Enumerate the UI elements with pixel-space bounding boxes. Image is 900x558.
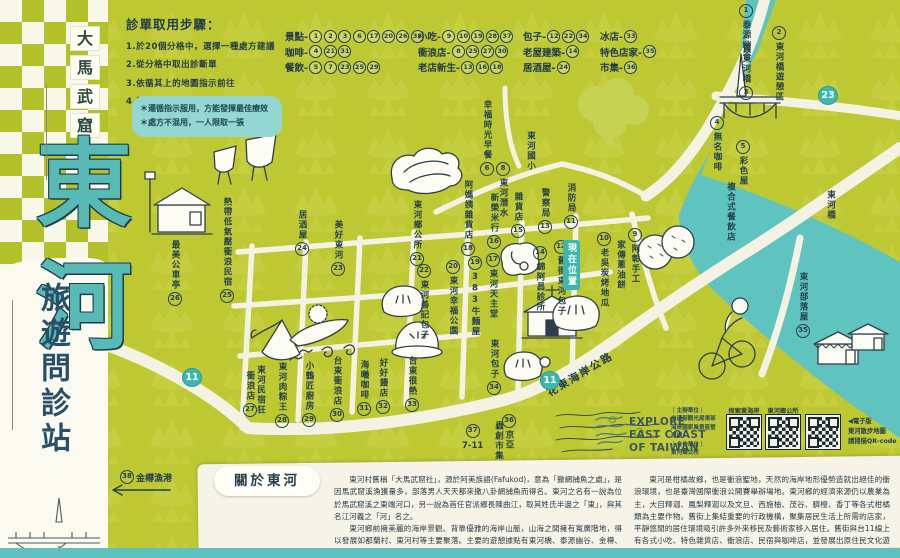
map-label-text: 京亞: [504, 430, 514, 450]
map-label: 東河民宿狂: [256, 365, 265, 415]
jinzun-arrow-icon: [113, 485, 170, 495]
legend-row: 老屋建築-14: [523, 46, 589, 58]
qr-code: 東河鄉公所: [766, 406, 800, 449]
scallion-pancake-illustration: [638, 226, 694, 269]
map-label-11: 消防局11: [564, 183, 578, 231]
map-label-text: 金樽漁港: [136, 471, 172, 484]
legend-row: 景點-123617202638: [285, 30, 424, 42]
legend-category-label: 餐飲-: [285, 60, 308, 74]
map-label-9: 9阿彰手工: [628, 226, 642, 284]
location-number-circle: 6: [480, 162, 494, 176]
map-label-text: 東河幸福公園: [448, 276, 458, 336]
map-label: 東河國小: [526, 131, 535, 171]
location-number-circle: 11: [564, 215, 578, 229]
map-label-31: 海曦咖啡31: [357, 360, 371, 418]
map-label-27: 衝浪店27: [243, 371, 257, 419]
sidebar-title-panel: 大馬武窟 東河 旅遊問診站: [0, 0, 108, 558]
location-number-circle: 1: [739, 4, 753, 18]
map-label-text: 東河橋: [826, 190, 836, 220]
legend-number-circle: 29: [367, 61, 380, 74]
location-number-circle: 35: [796, 324, 810, 338]
legend-row: 居酒屋-24: [523, 61, 589, 73]
qr-code-label: 東河鄉公所: [768, 406, 799, 414]
map-label-24: 居酒屋24: [295, 210, 309, 258]
legend-number-circle: 10: [457, 30, 470, 43]
legend-number-circle: 28: [486, 30, 499, 43]
location-number-circle: 4: [710, 116, 724, 130]
map-label-14: 14錦阿昌診所: [533, 244, 547, 312]
location-number-circle: 25: [220, 289, 234, 303]
map-label-text: 台東很熱: [407, 356, 417, 396]
map-label-text: 家傳蔥油餅: [616, 240, 626, 290]
map-label-23: 美好東河23: [331, 220, 345, 278]
legend-row: 餐飲-57232529: [285, 61, 424, 73]
legend-number-circle: 25: [353, 61, 366, 74]
location-number-circle: 37: [466, 424, 480, 438]
map-label-25: 熱帶低氣壓衝浪民宿25: [220, 197, 234, 305]
e-version-line: 請掃描QR-code: [848, 437, 897, 447]
qr-code-image: [766, 415, 800, 449]
map-label-text: 最美公車亭: [170, 240, 180, 290]
legend-number-circle: 35: [643, 45, 656, 58]
legend-category-label: 冰店-: [600, 29, 623, 43]
bridge-sketch-icon: [4, 482, 104, 557]
map-label-text: 東河包子: [489, 339, 499, 379]
map-label-3: 舊東河橋3: [739, 44, 753, 102]
map-label-text: 複合式餐飲店: [726, 182, 736, 242]
map-label-13: 警察局13: [538, 188, 552, 236]
legend-number-circle: 6: [353, 30, 366, 43]
route-11-badge: 11: [182, 368, 202, 387]
legend-number-circle: 37: [500, 30, 513, 43]
legend-row: 老店新生-131618: [418, 61, 513, 73]
qr-code-label: 探索東海岸: [729, 406, 760, 414]
qr-code: [806, 406, 840, 449]
map-label: 複合式餐飲店: [726, 182, 735, 242]
sidebar-top-title-char: 武: [70, 84, 100, 109]
legend-number-circle: 22: [562, 30, 575, 43]
qr-eye: [749, 417, 760, 428]
location-number-circle: 9: [628, 228, 642, 242]
legend-row: 市集-36: [600, 61, 656, 73]
map-label: 東河橋: [826, 190, 835, 220]
location-number-circle: 3: [739, 86, 753, 100]
location-number-circle: 22: [417, 264, 431, 278]
legend-row: 冰店-33: [600, 30, 656, 42]
organizer-block: ｜主辦單位｜ 交通部觀光局東部海岸國家風景區管理處 ｜合作單位｜ 東河鄉公所: [671, 407, 721, 457]
map-label-36: 36京亞: [502, 412, 516, 450]
location-number-circle: 30: [330, 408, 344, 422]
location-number-circle: 31: [357, 402, 371, 416]
legend-row: 咖啡-42131: [285, 46, 424, 58]
qr-code-image: [806, 415, 840, 449]
map-label-5: 5彩色屋: [736, 138, 750, 186]
instruction-step: 2.從分格中取出診斷單: [126, 58, 275, 70]
legend-number-circle: 17: [367, 30, 380, 43]
tree-illustration: [578, 78, 649, 146]
qr-eye: [729, 437, 740, 448]
map-label-2: 2東河橋遊憩區: [772, 24, 786, 102]
decor-line: [46, 84, 47, 180]
qr-eye: [788, 417, 799, 428]
partner-name: 東河鄉公所: [671, 449, 721, 457]
bus-shelter-illustration: [145, 172, 212, 234]
legend-number-circle: 25: [466, 45, 479, 58]
location-number-circle: 14: [533, 246, 547, 260]
legend-number-circle: 23: [338, 61, 351, 74]
legend-column: 冰店-33特色店家-35市集-36: [600, 30, 656, 77]
map-label-text: 東河鄉公所: [412, 200, 422, 250]
map-label-text: 東河善記包子: [419, 280, 429, 340]
map-label-text: 居酒屋: [297, 210, 307, 240]
legend-number-circle: 21: [324, 45, 337, 58]
about-title-box: 關於東河: [214, 466, 320, 496]
map-label-text: 無名咖啡: [712, 132, 722, 172]
map-label-text: 海曦咖啡: [359, 360, 369, 400]
map-label-text: 新榮米行: [489, 193, 499, 233]
instructions-block: 診單取用步驟： 1.於20個分格中，選擇一種處方建議2.從分格中取出診斷單3.依…: [126, 14, 275, 107]
map-label-10: 10老吳炭烤地瓜: [597, 230, 611, 308]
map-label-text: 熱帶低氣壓衝浪民宿: [222, 197, 232, 287]
bicycle-illustration: [699, 298, 755, 379]
legend-number-circle: 18: [490, 61, 503, 74]
map-label-text: 衝浪店: [245, 371, 255, 401]
map-label-21: 東河鄉公所21: [410, 200, 424, 268]
legend-number-circle: 14: [566, 45, 579, 58]
legend-category-label: 衝浪店-: [418, 45, 450, 59]
legend-category-label: 老屋建築-: [523, 45, 565, 59]
route-11-badge: 11: [540, 371, 560, 390]
map-label-16: 新榮米行16: [487, 193, 501, 251]
map-label-6: 幸福時光早餐6: [480, 100, 494, 178]
location-number-circle: 28: [275, 414, 289, 428]
map-label-19: 19383牛麵屋: [468, 254, 482, 337]
you-are-here-tag: 現在位置: [563, 240, 580, 290]
map-label-text: 台東衝浪店: [332, 356, 342, 406]
map-label-text: 阿彰手工: [630, 244, 640, 284]
legend-category-label: 居酒屋-: [523, 60, 555, 74]
legend-row: 小吃-910192837: [418, 30, 513, 42]
legend-category-label: 景點-: [285, 29, 308, 43]
legend-number-circle: 2: [324, 30, 337, 43]
location-number-circle: 36: [502, 414, 516, 428]
about-paragraph-left: 東河村舊稱「大馬武窟社」，源於阿美族語(Fafukod)，意為「撒網捕魚之處」，…: [334, 474, 622, 558]
sidebar-subtitle: 旅遊問診站: [30, 282, 74, 457]
map-label-26: 最美公車亭26: [168, 240, 182, 308]
location-number-circle: 26: [168, 292, 182, 306]
legend-column: 包子-122234老屋建築-14居酒屋-24: [523, 30, 589, 77]
location-number-circle: 8: [496, 162, 510, 176]
legend-number-circle: 13: [461, 61, 474, 74]
photo-bottom-band: [0, 548, 900, 558]
custard-apple-illustration: [391, 148, 461, 193]
legend-row: 特色店家-35: [600, 46, 656, 58]
map-label-text: 消防局: [566, 183, 576, 213]
qr-code: 探索東海岸: [727, 406, 761, 449]
legend-category-label: 老店新生-: [418, 60, 460, 74]
e-version-note: ◀電子版東河散步地圖請掃描QR-code: [848, 417, 897, 447]
qr-eye: [768, 417, 779, 428]
instruction-note: ＊遵循指示服用，方能發揮最佳療效: [140, 102, 274, 116]
tribal-houses-illustration: [814, 324, 888, 364]
map-label-text: 東河部落屋: [798, 272, 808, 322]
qr-code-image: [727, 415, 761, 449]
map-label-text: 小鶴匠廚房: [304, 361, 314, 411]
location-number-circle: 20: [446, 260, 460, 274]
route-23-badge: 23: [818, 86, 838, 105]
location-number-circle: 24: [295, 242, 309, 256]
map-label-35: 東河部落屋35: [796, 272, 810, 340]
qr-eye: [808, 437, 819, 448]
instructions-note-bubble: ＊遵循指示服用，方能發揮最佳療效＊處方不混用，一人限取一張: [132, 96, 282, 137]
map-label-29: 小鶴匠廚房29: [302, 361, 316, 429]
legend-number-circle: 31: [338, 45, 351, 58]
instructions-title: 診單取用步驟：: [126, 14, 275, 33]
location-number-circle: 10: [597, 232, 611, 246]
legend-column: 小吃-910192837衝浪店-8252730老店新生-131618: [418, 30, 513, 77]
map-label: 蟲創市集: [494, 421, 503, 461]
map-label-text: 老吳炭烤地瓜: [599, 248, 609, 308]
location-number-circle: 17: [486, 253, 500, 267]
map-label-text: 7-11: [462, 441, 483, 451]
organizer-name: 交通部觀光局東部海岸國家風景區管理處: [671, 415, 721, 440]
map-label-text: 383牛麵屋: [470, 272, 480, 337]
map-label-text: 好好饅店: [378, 358, 388, 398]
sidebar-top-title-char: 馬: [70, 55, 100, 80]
map-label-34: 東河包子34: [487, 339, 501, 397]
instruction-note: ＊處方不混用，一人限取一張: [140, 116, 274, 130]
map-label-22: 22東河善記包子: [417, 262, 431, 340]
legend-number-circle: 8: [452, 45, 465, 58]
qr-eye: [768, 437, 779, 448]
legend-number-circle: 26: [396, 30, 409, 43]
legend-number-circle: 33: [624, 30, 637, 43]
instruction-step: 3.依循其上的地圖指示前往: [126, 77, 275, 89]
map-label-17: 17東河天主堂: [486, 251, 500, 319]
map-label-text: 東河民宿狂: [256, 365, 266, 415]
e-version-line: 東河散步地圖: [848, 427, 897, 437]
legend-category-label: 包子-: [523, 29, 546, 43]
map-label-18: 阿媽姨雜貨店18: [461, 180, 475, 258]
legend-number-circle: 1: [309, 30, 322, 43]
legend-number-circle: 9: [442, 30, 455, 43]
partner-label: ｜合作單位｜: [671, 441, 721, 449]
legend-number-circle: 19: [471, 30, 484, 43]
qr-eye: [808, 417, 819, 428]
location-number-circle: 13: [538, 220, 552, 234]
map-label-text: 東河肉粽王: [277, 362, 287, 412]
qr-eye: [729, 417, 740, 428]
map-label-text: 東河國小: [526, 131, 536, 171]
surfboard-waves-illustration: [290, 305, 354, 360]
decor-line: [12, 300, 13, 430]
sidebar-top-title-char: 大: [70, 26, 100, 51]
legend-number-circle: 7: [324, 61, 337, 74]
map-label-15: 雜貨店15: [511, 192, 525, 240]
map-label-33: 台東很熱33: [405, 356, 419, 414]
about-p1: 東河村舊稱「大馬武窟社」，源於阿美族語(Fafukod)，意為「撒網捕魚之處」，…: [334, 474, 622, 523]
location-number-circle: 27: [243, 403, 257, 417]
legend-number-circle: 12: [547, 30, 560, 43]
location-number-circle: 29: [302, 413, 316, 427]
legend-category-label: 市集-: [600, 60, 623, 74]
location-number-circle: 32: [376, 400, 390, 414]
legend-category-label: 特色店家-: [600, 45, 642, 59]
map-label-37: 377-11: [462, 422, 483, 451]
map-label-text: 蟲創市集: [494, 421, 504, 461]
location-number-circle: 38: [120, 470, 134, 484]
legend-category-label: 咖啡-: [285, 45, 308, 59]
e-version-line: ◀電子版: [848, 417, 897, 427]
map-label-text: 舊東河橋: [741, 44, 751, 84]
donghe-tourist-map: 大馬武窟 東河 旅遊問診站 診單取用步驟： 1.於20個分格中，選擇一種處方建議…: [0, 0, 900, 558]
map-label-text: 美好東河: [333, 220, 343, 260]
location-number-circle: 34: [487, 381, 501, 395]
map-label-text: 東河天主堂: [488, 269, 498, 319]
map-label-38: 38金樽漁港: [120, 468, 172, 486]
location-number-circle: 16: [487, 235, 501, 249]
map-label-text: 彩色屋: [738, 156, 748, 186]
location-number-circle: 23: [331, 262, 345, 276]
legend-number-circle: 3: [338, 30, 351, 43]
legend-number-circle: 34: [576, 30, 589, 43]
location-number-circle: 15: [511, 224, 525, 238]
qr-eye: [828, 417, 839, 428]
legend-number-circle: 16: [476, 61, 489, 74]
map-label-text: 幸福時光早餐: [482, 100, 492, 160]
mascot-illustrations: [214, 134, 276, 184]
map-label-text: 雜貨店: [513, 192, 523, 222]
location-number-circle: 19: [468, 256, 482, 270]
location-number-circle: 2: [772, 26, 786, 40]
about-paragraph-right: 東河是柑橘故鄉，也是衝浪聖地，天然的海岸地形優勢造就出絕佳的衝浪環境，也是臺灣國…: [634, 474, 890, 558]
map-label: 家傳蔥油餅: [616, 240, 625, 290]
legend-number-circle: 36: [624, 61, 637, 74]
legend-number-circle: 4: [309, 45, 322, 58]
legend-column: 景點-123617202638咖啡-42131餐飲-57232529: [285, 30, 424, 77]
map-label-text: 錦阿昌診所: [535, 262, 545, 312]
map-label-28: 東河肉粽王28: [275, 362, 289, 430]
location-number-circle: 33: [405, 398, 419, 412]
legend-number-circle: 27: [481, 45, 494, 58]
map-label-30: 台東衝浪店30: [330, 356, 344, 424]
map-label-32: 好好饅店32: [376, 358, 390, 416]
map-label-20: 20東河幸福公園: [446, 258, 460, 336]
legend-number-circle: 20: [382, 30, 395, 43]
instruction-step: 1.於20個分格中，選擇一種處方建議: [126, 40, 275, 52]
legend-number-circle: 24: [557, 61, 570, 74]
organizer-label: ｜主辦單位｜: [671, 407, 721, 415]
legend-row: 衝浪店-8252730: [418, 46, 513, 58]
legend-row: 包子-122234: [523, 30, 589, 42]
location-number-circle: 5: [736, 140, 750, 154]
map-label-4: 4無名咖啡: [710, 114, 724, 172]
legend-number-circle: 30: [495, 45, 508, 58]
about-p3: 東河是柑橘故鄉，也是衝浪聖地，天然的海岸地形優勢造就出絕佳的衝浪環境，也是臺灣國…: [634, 474, 890, 558]
legend-category-label: 小吃-: [418, 29, 441, 43]
legend-number-circle: 5: [309, 61, 322, 74]
map-label-text: 阿媽姨雜貨店: [463, 180, 473, 240]
map-label-text: 警察局: [540, 188, 550, 218]
map-label-text: 東河橋遊憩區: [774, 42, 784, 102]
